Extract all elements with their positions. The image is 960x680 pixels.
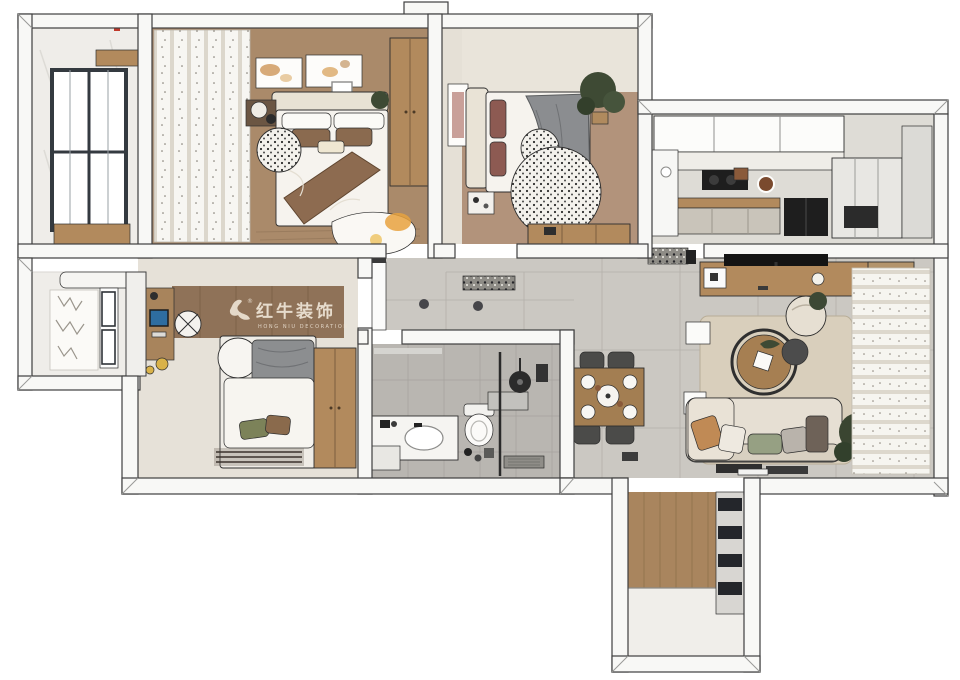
kitchen-island xyxy=(676,198,780,234)
sink xyxy=(405,426,443,450)
curtains xyxy=(154,30,250,242)
place-setting xyxy=(581,405,595,419)
round-pouf xyxy=(257,128,301,172)
sink-cabinet xyxy=(652,150,678,236)
bedroom-2 xyxy=(442,28,638,250)
round-rug xyxy=(511,147,601,237)
wall xyxy=(402,330,574,344)
shower-caddy xyxy=(536,364,548,382)
dining-chair xyxy=(606,424,634,444)
dining-chair xyxy=(574,424,600,444)
balcony-wood-shelf xyxy=(96,50,138,66)
maroon-pillow xyxy=(490,100,506,138)
brown-pillow xyxy=(265,415,291,435)
watermark-en: HONG NIU DECORATION xyxy=(258,324,349,330)
kitchen-doormat xyxy=(648,248,688,264)
wall xyxy=(638,100,948,114)
plant xyxy=(371,91,389,109)
place-setting xyxy=(623,375,637,389)
wall xyxy=(744,478,760,672)
balcony-planter-cabinet xyxy=(54,224,130,244)
balcony-2 xyxy=(32,272,138,376)
bathroom xyxy=(372,344,560,478)
wall xyxy=(560,330,574,478)
wall xyxy=(428,14,442,258)
sofa xyxy=(686,398,842,462)
upper-cabinets xyxy=(654,116,844,170)
countertop xyxy=(654,152,844,170)
kitchen xyxy=(652,114,934,244)
marble-column xyxy=(902,126,932,238)
open-door-leaf xyxy=(372,258,386,330)
registered-mark: ® xyxy=(247,298,253,305)
desk-item xyxy=(150,292,158,300)
wall xyxy=(358,258,372,278)
tall-cabinet-unit xyxy=(832,158,902,238)
master-bedroom xyxy=(152,28,430,255)
small-object xyxy=(622,452,638,461)
wall xyxy=(122,376,138,494)
pillow xyxy=(282,113,331,129)
shelf-slot xyxy=(718,526,742,539)
wall xyxy=(18,244,386,258)
leaf-curtain xyxy=(50,290,98,370)
living-curtain xyxy=(852,268,930,474)
wall xyxy=(612,478,628,672)
wall xyxy=(638,14,652,258)
shelf-slot xyxy=(718,554,742,567)
decor-item xyxy=(544,227,556,235)
toiletries xyxy=(380,420,390,428)
yellow-stool xyxy=(146,366,154,374)
shelf-panel xyxy=(488,392,528,410)
place-setting xyxy=(623,405,637,419)
doormat xyxy=(463,276,515,290)
floor-plan-rendering: ® 红牛装饰 HONG NIU DECORATION xyxy=(0,0,960,680)
balcony2-window xyxy=(100,288,118,368)
striped-pillow xyxy=(718,424,746,454)
foot-bench xyxy=(214,448,304,466)
olive-pillow xyxy=(239,418,269,440)
orange-spot xyxy=(385,213,411,231)
place-setting xyxy=(581,375,595,389)
wall xyxy=(612,656,760,672)
wall xyxy=(744,478,948,494)
headboard xyxy=(466,88,488,188)
wardrobe xyxy=(390,38,430,186)
wall xyxy=(517,244,648,258)
balcony-window xyxy=(52,70,126,230)
dining-chair xyxy=(608,352,634,370)
pot xyxy=(734,168,748,180)
floor-mat xyxy=(766,466,808,474)
remote xyxy=(758,286,768,290)
pillow xyxy=(334,113,384,129)
wall-artwork xyxy=(448,84,468,146)
tv xyxy=(724,254,828,266)
shelf-slot xyxy=(718,582,742,595)
monitor xyxy=(150,310,168,326)
yellow-stool xyxy=(156,358,168,370)
keyboard xyxy=(152,332,166,337)
nightstand-2 xyxy=(468,192,494,214)
armchair-plant xyxy=(809,292,827,310)
wall xyxy=(358,328,372,494)
accent-pillow xyxy=(318,141,344,153)
maroon-pillow xyxy=(490,142,506,176)
window-wall xyxy=(126,272,146,376)
headboard xyxy=(272,92,388,112)
bed-3 xyxy=(214,336,316,468)
mirror-cabinet xyxy=(374,348,442,354)
ceiling-light xyxy=(473,301,483,311)
shelf-slot xyxy=(718,498,742,511)
wall-artwork-1 xyxy=(256,58,302,88)
taupe-pillow xyxy=(806,416,828,452)
wall xyxy=(358,330,368,344)
fruit-bowl xyxy=(758,176,774,192)
gray-pillow xyxy=(780,426,809,453)
bedroom-3: ® 红牛装饰 HONG NIU DECORATION xyxy=(138,258,358,478)
nightstand xyxy=(246,100,276,126)
built-in-oven xyxy=(844,206,878,228)
wall xyxy=(434,244,455,258)
entry-hall xyxy=(628,492,744,656)
floor-plan-canvas: ® 红牛装饰 HONG NIU DECORATION xyxy=(0,0,960,680)
balcony-1 xyxy=(32,28,138,244)
wardrobe-3 xyxy=(314,348,356,468)
wall xyxy=(138,14,152,258)
sage-pillow xyxy=(748,434,782,454)
shoe-cabinet xyxy=(716,492,744,614)
corridor-floor xyxy=(372,258,574,330)
cooktop xyxy=(702,168,748,190)
refrigerator xyxy=(784,198,828,236)
faucet xyxy=(414,423,422,427)
wall xyxy=(18,14,32,258)
black-dish xyxy=(266,114,276,124)
dining-set xyxy=(572,352,644,444)
dining-chair xyxy=(580,352,604,370)
duvet xyxy=(224,378,314,448)
plant-pot xyxy=(592,112,608,124)
watermark-zh: 红牛装饰 xyxy=(256,301,336,322)
console-lamp xyxy=(812,273,824,285)
dark-side-table xyxy=(782,339,808,365)
mat-shadow xyxy=(686,250,696,264)
side-table-white xyxy=(686,322,710,344)
step-bench xyxy=(372,446,400,470)
table-lamp xyxy=(251,102,267,118)
ceiling-light xyxy=(419,299,429,309)
wall xyxy=(122,478,574,494)
white-sheet xyxy=(738,469,768,475)
wall xyxy=(18,258,32,390)
entry-wood-floor xyxy=(628,492,716,588)
paper-roll xyxy=(661,167,671,177)
wall xyxy=(18,14,652,28)
wall xyxy=(934,114,948,496)
